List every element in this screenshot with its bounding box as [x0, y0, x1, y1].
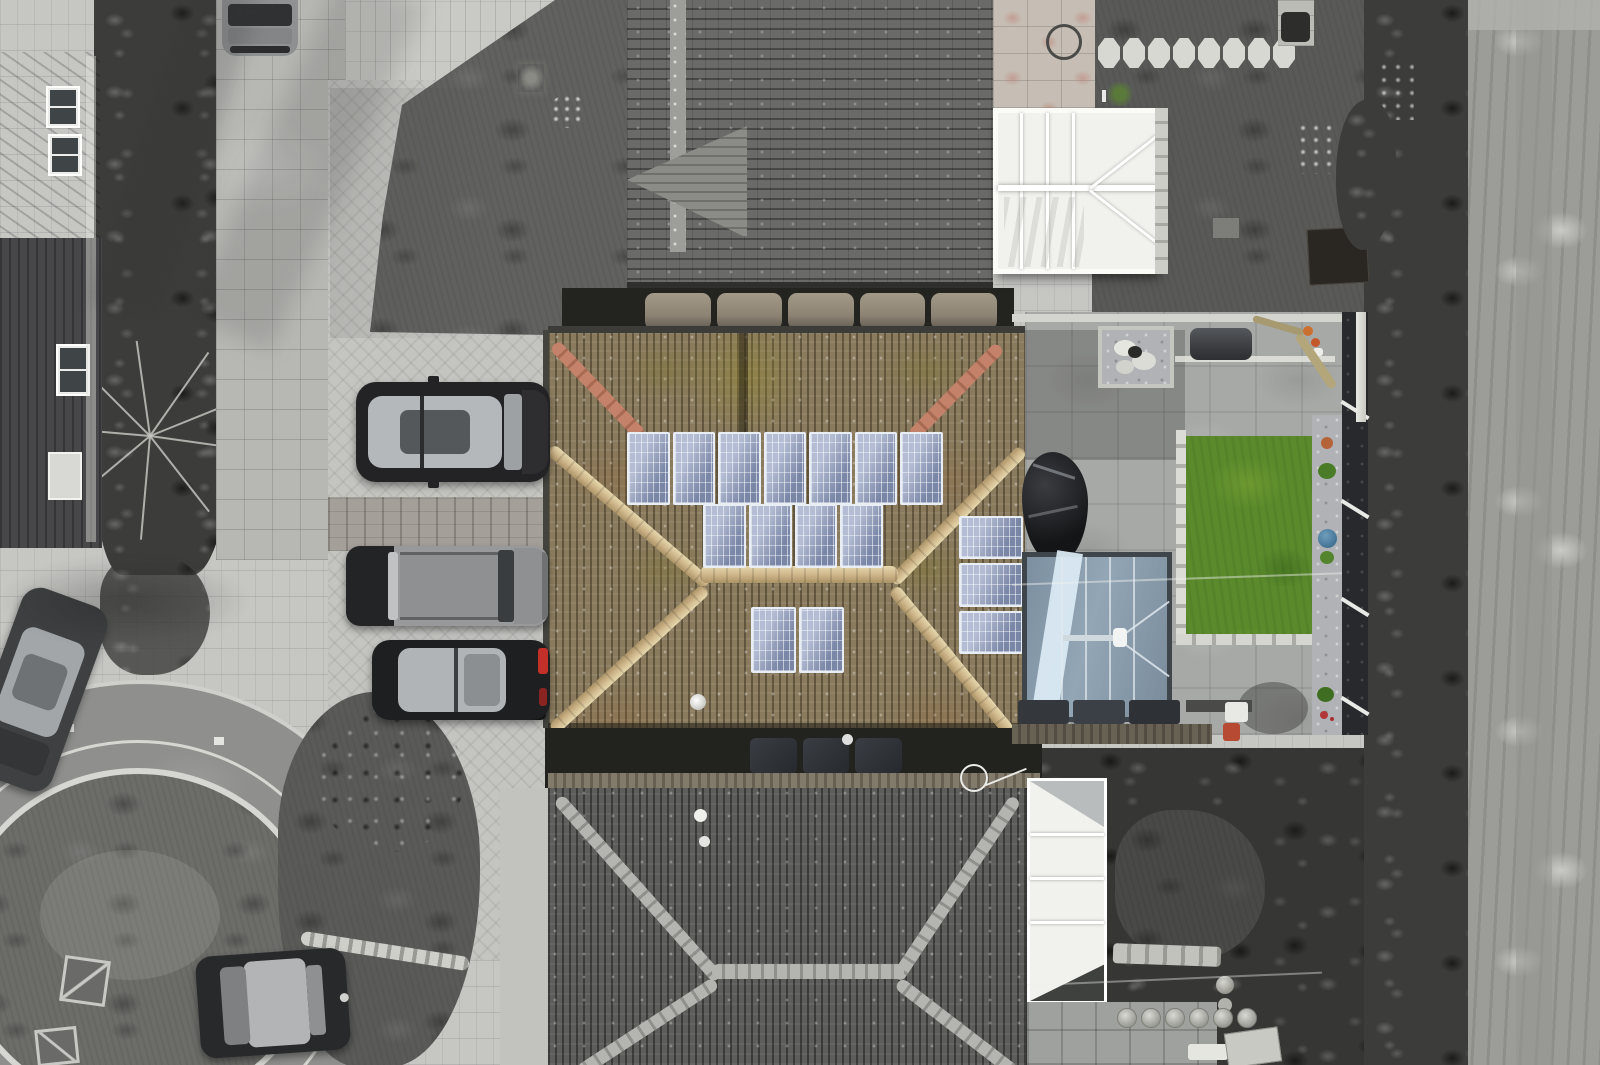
solar-panel	[900, 432, 943, 505]
water-feature-basin	[1128, 346, 1142, 358]
timber-log	[645, 293, 711, 330]
artificial-lawn	[1186, 436, 1312, 636]
wheelie-bins	[750, 738, 902, 774]
timber-log	[860, 293, 926, 330]
water-feature	[1098, 326, 1174, 388]
plant-pot	[1141, 1008, 1161, 1028]
conservatory-bar	[1030, 877, 1104, 880]
road-drain-2	[214, 737, 224, 745]
wheelie-bin	[803, 738, 850, 774]
car-suv-dark	[356, 382, 550, 482]
bin-lid	[1129, 700, 1180, 724]
solar-panel	[840, 504, 883, 568]
solar-panel	[718, 432, 761, 505]
red-fuel-can	[1223, 723, 1240, 741]
plant-pot	[1189, 1008, 1209, 1028]
car-roof-tint	[464, 654, 500, 706]
fence-rails	[1339, 408, 1371, 708]
conservatory-bar	[1030, 833, 1104, 836]
window-pane	[50, 108, 76, 124]
car-windscreen	[219, 966, 250, 1046]
solar-panel	[673, 432, 716, 505]
car-windscreen	[498, 550, 514, 622]
aerial-photo-scene	[0, 0, 1600, 1065]
shed-corner-bottom	[1224, 1026, 1282, 1065]
car-mirror	[428, 376, 439, 383]
plant-pot	[1213, 1008, 1233, 1028]
bottom-main-ridge	[712, 964, 904, 979]
fence-corner-frame	[1356, 312, 1366, 422]
car-mirror	[428, 481, 439, 488]
tarp-fold-highlight	[1033, 463, 1076, 479]
fence-rail	[1340, 597, 1369, 617]
log-store	[645, 293, 997, 330]
decking-right	[1012, 724, 1212, 744]
focal-conservatory	[1022, 552, 1172, 722]
solar-panel	[959, 516, 1023, 559]
car-taillight-red	[538, 648, 548, 674]
white-storage-box	[1225, 702, 1248, 722]
car-taillight-red-2	[539, 688, 547, 706]
solar-panel	[764, 432, 807, 505]
bin-store-bin	[1281, 12, 1310, 42]
potted-plant-spiky	[1106, 82, 1134, 106]
fire-bowl	[1046, 24, 1082, 60]
border-plant	[1317, 687, 1334, 702]
left-house-window-4	[48, 452, 82, 500]
solar-array-rear-pair	[751, 607, 844, 673]
hedge-blossom-1	[1296, 122, 1336, 174]
stacked-pots	[1216, 976, 1234, 994]
border-plant	[1320, 551, 1334, 564]
stone-wall-row	[1113, 943, 1222, 967]
car-roof-panel	[400, 410, 470, 454]
stepping-stone	[1098, 38, 1120, 68]
plant-pot	[1237, 1008, 1257, 1028]
bottom-conservatory	[1027, 778, 1107, 1004]
top-conservatory	[993, 108, 1163, 274]
car-suv-grey	[346, 546, 548, 626]
conservatory-ridge-bar	[998, 185, 1158, 191]
solar-panel	[703, 504, 746, 568]
bin-lids-row	[1018, 700, 1180, 724]
tree-branch	[149, 435, 210, 512]
bush	[316, 704, 464, 852]
solar-panel	[627, 432, 670, 505]
bottom-paving-left	[500, 788, 548, 1065]
stepping-stone	[1223, 38, 1245, 68]
solar-panel	[795, 504, 838, 568]
plant-pot	[1165, 1008, 1185, 1028]
stepping-stones	[1098, 38, 1298, 70]
window-pane	[52, 156, 78, 172]
border-plant	[1318, 463, 1336, 479]
left-house-window-3	[56, 344, 90, 396]
manhole-2	[34, 1026, 80, 1065]
stepping-stone	[1148, 38, 1170, 68]
bin-lid	[1018, 700, 1069, 724]
tarp-fold-highlight	[1028, 505, 1078, 518]
wheelie-bin	[855, 738, 902, 774]
stepping-stone	[1248, 38, 1270, 68]
car-pillar	[454, 648, 458, 712]
conservatory-hip-bar	[1089, 189, 1159, 244]
pot-orange-1	[1303, 326, 1313, 336]
focal-roof-valley	[739, 332, 748, 434]
water-feature-rock	[1116, 360, 1134, 374]
bird-feeder	[1213, 218, 1239, 238]
conservatory-finial	[1113, 628, 1127, 647]
solar-panel	[855, 432, 898, 505]
bin-lid	[1073, 700, 1124, 724]
lawn-kerb-left	[1176, 430, 1186, 644]
manhole-1	[59, 955, 111, 1007]
hedge-shadow-road	[0, 556, 250, 646]
window-pane	[52, 138, 78, 154]
conservatory-hip-bar	[1089, 134, 1159, 189]
car-grille	[542, 552, 548, 620]
car-windscreen-band	[504, 394, 522, 470]
left-house-window-1	[46, 86, 80, 128]
lawn-kerb-bottom	[1176, 634, 1316, 645]
solar-panel	[809, 432, 852, 505]
car-bottom-estate	[194, 943, 353, 1063]
window-pane	[50, 90, 76, 106]
garden-top-beam	[1012, 314, 1355, 322]
conservatory-dark-wedge	[1030, 949, 1104, 1001]
track-centre-strip	[1516, 0, 1552, 1065]
timber-log	[717, 293, 783, 330]
solar-panel	[751, 607, 796, 673]
car-rear-window	[388, 552, 398, 620]
terracotta-pot	[1321, 437, 1333, 449]
car-roof-panel	[243, 958, 311, 1048]
fence-rail	[1340, 498, 1369, 518]
red-flowers	[1320, 711, 1328, 719]
blue-plant-pot	[1318, 529, 1337, 548]
window-pane	[60, 371, 86, 392]
car-tailgate	[346, 546, 394, 626]
top-patio-pavers	[993, 0, 1095, 108]
timber-log	[931, 293, 997, 330]
plant-pot	[1117, 1008, 1137, 1028]
focal-gutter-top	[548, 326, 1025, 333]
roof-vent	[690, 694, 706, 710]
solar-panel	[799, 607, 844, 673]
timber-log	[788, 293, 854, 330]
bottom-roof-vent	[694, 809, 707, 822]
top-conservatory-sill	[1155, 108, 1168, 274]
white-tray	[1188, 1044, 1228, 1060]
conservatory-bar	[1030, 921, 1104, 924]
solar-array-middle-row	[703, 504, 883, 568]
solar-array-front-row	[627, 432, 943, 505]
pot-orange-2	[1311, 338, 1320, 347]
garden-storage-bin	[1190, 328, 1252, 360]
bottom-roof-vent	[699, 836, 710, 847]
stepping-stone	[1123, 38, 1145, 68]
stepping-stone	[1198, 38, 1220, 68]
parking-shade	[330, 88, 562, 338]
main-ridge	[700, 566, 898, 583]
tv-aerial-ring	[960, 764, 988, 792]
window-pane	[60, 348, 86, 369]
conservatory-grey-wedge	[1030, 781, 1104, 827]
car-pillar	[420, 396, 424, 468]
stepping-stone	[1173, 38, 1195, 68]
tree-branch	[140, 436, 151, 540]
solar-panel	[749, 504, 792, 568]
top-house-ridge	[670, 0, 686, 252]
car-hatch-black	[372, 640, 550, 720]
conservatory-glass-shading	[1004, 197, 1084, 267]
wheelie-bin	[750, 738, 797, 774]
bin-lid-dot	[842, 734, 853, 745]
left-house-window-2	[48, 134, 82, 176]
car-roof	[400, 552, 498, 620]
solar-panel	[959, 611, 1023, 654]
car-bonnet	[522, 390, 548, 474]
